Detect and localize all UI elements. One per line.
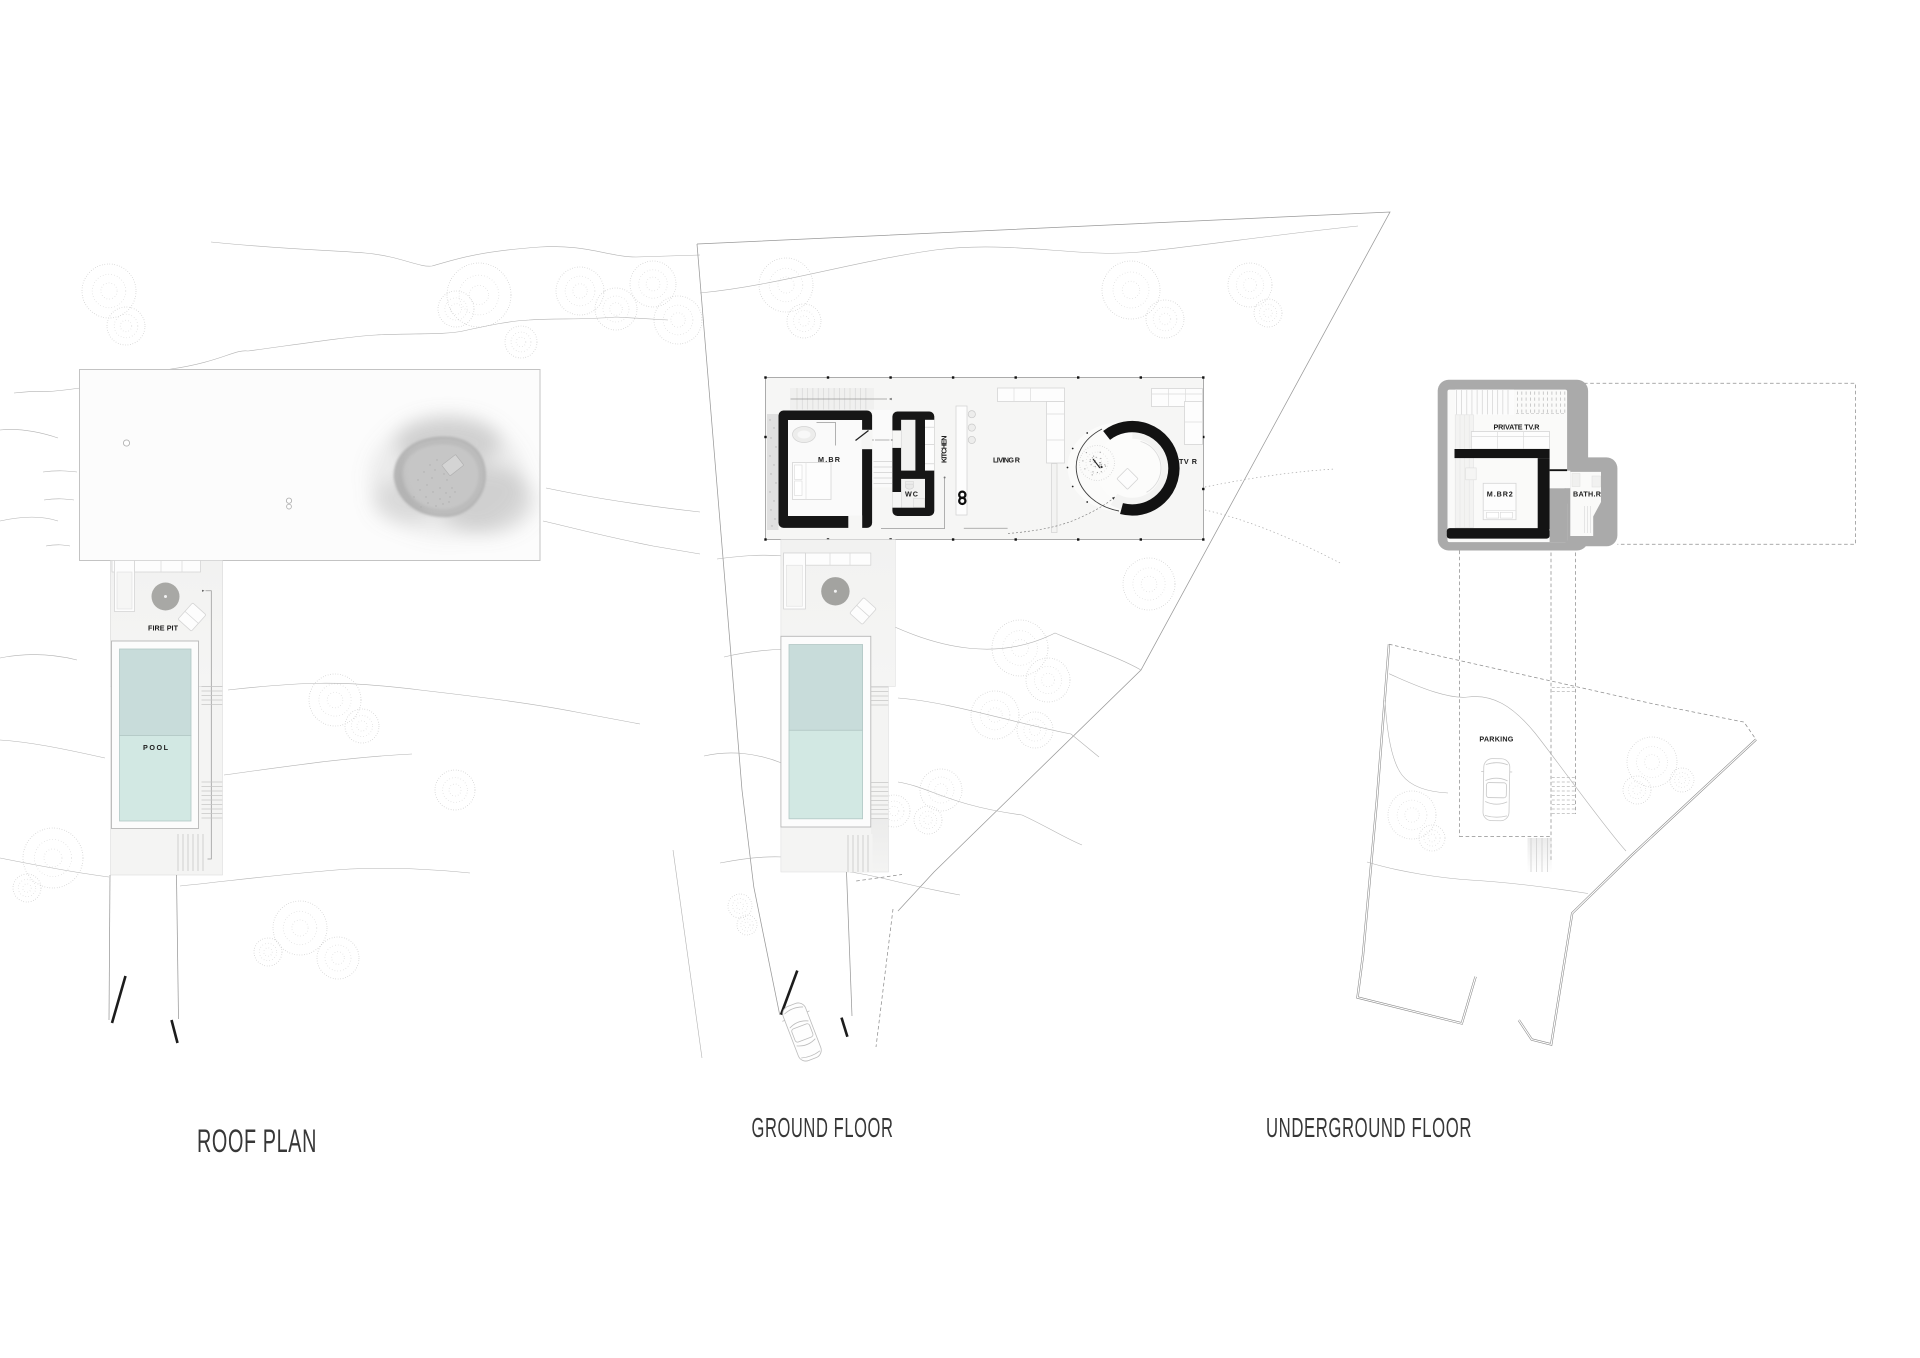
svg-text:M.BR2: M.BR2 <box>1487 490 1513 499</box>
svg-text:WC: WC <box>905 490 918 499</box>
svg-text:ROOF PLAN: ROOF PLAN <box>197 1123 317 1159</box>
svg-text:FIRE PIT: FIRE PIT <box>148 624 179 633</box>
svg-text:KITCHEN: KITCHEN <box>940 436 949 464</box>
svg-text:BATH.R: BATH.R <box>1573 490 1602 499</box>
svg-text:PRIVATE TV.R: PRIVATE TV.R <box>1494 423 1541 432</box>
svg-text:UNDERGROUND FLOOR: UNDERGROUND FLOOR <box>1266 1112 1472 1143</box>
svg-text:LIVING R: LIVING R <box>993 456 1021 465</box>
svg-text:PARKING: PARKING <box>1479 735 1513 744</box>
svg-text:GROUND FLOOR: GROUND FLOOR <box>752 1112 894 1143</box>
svg-text:POOL: POOL <box>143 743 169 752</box>
svg-text:M.BR: M.BR <box>818 455 841 464</box>
svg-text:TV R: TV R <box>1179 457 1198 466</box>
